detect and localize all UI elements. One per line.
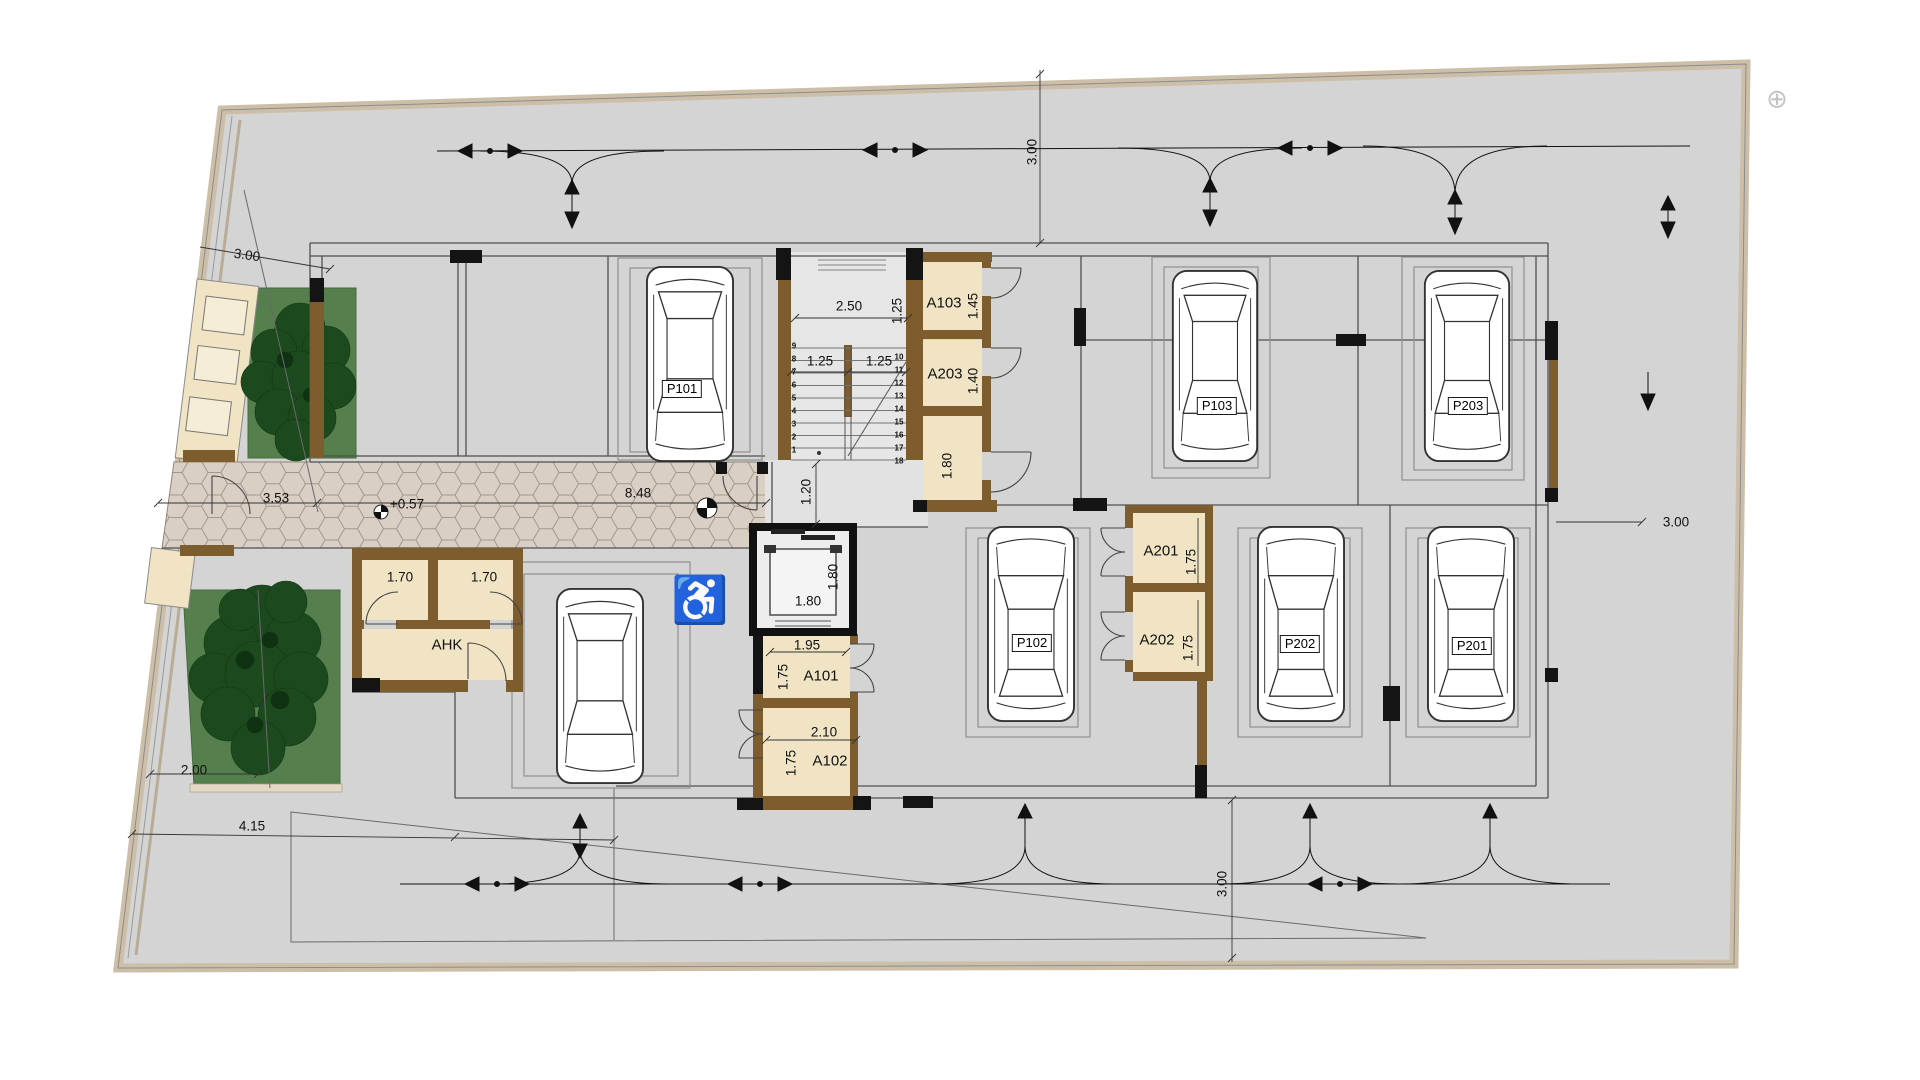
step-number: 7 [792, 368, 796, 377]
step-number: 3 [792, 420, 796, 429]
car-p101 [647, 267, 733, 461]
dim-site-top: 3.00 [1025, 139, 1040, 165]
room-label-a103: A103 [926, 295, 961, 312]
step-number: 4 [792, 407, 796, 416]
step-number: 5 [792, 394, 796, 403]
dim-ahk-right: 1.70 [471, 570, 497, 585]
car-p103 [1173, 271, 1257, 461]
step-number: 9 [792, 342, 796, 351]
step-number: 6 [792, 381, 796, 390]
dim-a201-depth: 1.75 [1184, 549, 1199, 575]
dim-site-bottom: 3.00 [1215, 871, 1230, 897]
parking-label-p203: P203 [1448, 397, 1488, 415]
parking-label-p202: P202 [1280, 635, 1320, 653]
wheelchair-icon: ♿ [671, 573, 728, 628]
dim-a203-depth: 1.40 [966, 368, 981, 394]
room-label-a102: A102 [812, 753, 847, 770]
step-number: 17 [895, 444, 904, 453]
step-number: 18 [895, 457, 904, 466]
step-number: 15 [895, 418, 904, 427]
dim-flight-left: 1.25 [807, 354, 833, 369]
survey-mark-icon: ⊕ [1766, 84, 1788, 115]
room-label-a201: A201 [1143, 543, 1178, 560]
dim-garden-width: 2.00 [181, 763, 207, 778]
dim-ramp-width: 4.15 [239, 819, 265, 834]
step-number: 13 [895, 392, 904, 401]
dim-entry-level: +0.57 [390, 497, 424, 512]
dim-elevator-depth: 1.80 [826, 564, 841, 590]
car-p201 [1428, 527, 1514, 721]
dim-elevator-width: 1.80 [795, 594, 821, 609]
dim-stair-width: 2.50 [836, 299, 862, 314]
dim-ahk-left: 1.70 [387, 570, 413, 585]
parking-label-p101: P101 [662, 380, 702, 398]
step-number: 12 [895, 379, 904, 388]
room-label-a202: A202 [1139, 632, 1174, 649]
step-number: 2 [792, 433, 796, 442]
dim-a101-depth: 1.75 [776, 664, 791, 690]
parking-label-p102: P102 [1012, 634, 1052, 652]
dim-path-left: 3.53 [263, 491, 289, 506]
car-p202 [1258, 527, 1344, 721]
paved-walkway [162, 462, 772, 548]
floor-plan-drawing [0, 0, 1920, 1080]
dim-a102-width: 2.10 [811, 725, 837, 740]
dim-store-depth: 1.80 [940, 453, 955, 479]
parking-label-p103: P103 [1197, 397, 1237, 415]
step-number: 1 [792, 446, 796, 455]
dim-corridor-width: 1.20 [799, 479, 814, 505]
dim-path-right: 8.48 [625, 486, 651, 501]
room-label-a203: A203 [927, 366, 962, 383]
dim-site-right: 3.00 [1663, 515, 1689, 530]
floor-plan: 3.00 3.00 3.00 3.00 2.50 1.25 1.25 1.25 … [0, 0, 1920, 1080]
step-number: 10 [895, 353, 904, 362]
dim-a103-depth: 1.45 [966, 293, 981, 319]
car-p102 [988, 527, 1074, 721]
room-label-ahk: AHK [432, 637, 463, 654]
dim-a102-depth: 1.75 [784, 750, 799, 776]
car-p203 [1425, 271, 1509, 461]
step-number: 14 [895, 405, 904, 414]
parking-label-p201: P201 [1452, 637, 1492, 655]
dim-flight-right: 1.25 [866, 354, 892, 369]
car-accessible [557, 589, 643, 783]
step-number: 16 [895, 431, 904, 440]
dim-stair-landing: 1.25 [890, 298, 905, 324]
dim-a101-width: 1.95 [794, 638, 820, 653]
dim-a202-depth: 1.75 [1181, 635, 1196, 661]
step-number: 11 [895, 366, 903, 375]
room-label-a101: A101 [803, 668, 838, 685]
step-number: 8 [792, 355, 796, 364]
